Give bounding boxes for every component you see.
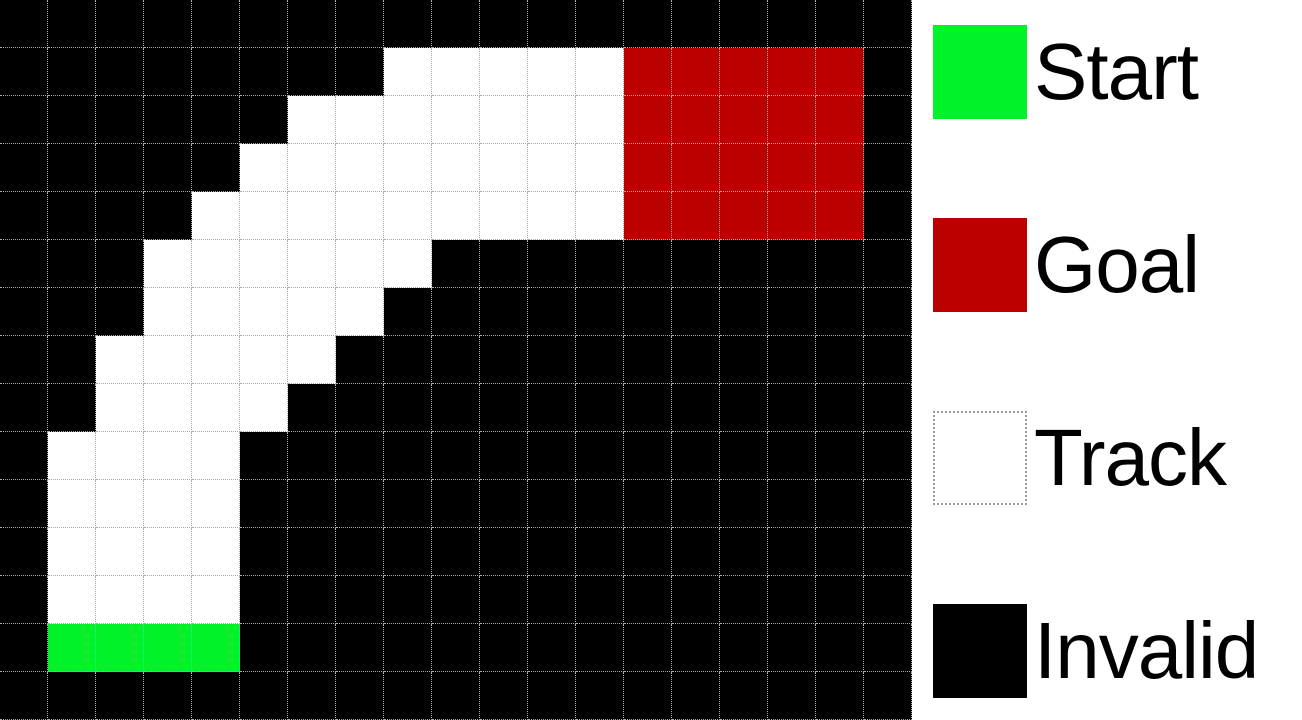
- cell-invalid: [288, 672, 336, 720]
- cell-invalid: [144, 144, 192, 192]
- cell-invalid: [480, 672, 528, 720]
- cell-track: [288, 336, 336, 384]
- cell-invalid: [480, 336, 528, 384]
- cell-invalid: [0, 624, 48, 672]
- cell-track: [96, 576, 144, 624]
- cell-goal: [672, 144, 720, 192]
- cell-invalid: [768, 0, 816, 48]
- cell-goal: [672, 48, 720, 96]
- cell-invalid: [48, 336, 96, 384]
- legend-label-start: Start: [1034, 32, 1198, 112]
- cell-invalid: [240, 432, 288, 480]
- cell-start: [144, 624, 192, 672]
- cell-invalid: [96, 144, 144, 192]
- cell-track: [96, 384, 144, 432]
- cell-invalid: [0, 528, 48, 576]
- cell-track: [240, 384, 288, 432]
- cell-goal: [624, 96, 672, 144]
- cell-track: [336, 240, 384, 288]
- cell-track: [192, 240, 240, 288]
- cell-invalid: [864, 96, 912, 144]
- cell-track: [48, 480, 96, 528]
- cell-track: [96, 528, 144, 576]
- cell-invalid: [384, 528, 432, 576]
- cell-invalid: [672, 624, 720, 672]
- cell-invalid: [144, 96, 192, 144]
- cell-invalid: [96, 96, 144, 144]
- cell-invalid: [528, 288, 576, 336]
- cell-invalid: [96, 192, 144, 240]
- cell-track: [144, 288, 192, 336]
- cell-invalid: [384, 384, 432, 432]
- cell-invalid: [144, 192, 192, 240]
- cell-invalid: [528, 384, 576, 432]
- cell-invalid: [0, 288, 48, 336]
- cell-invalid: [0, 96, 48, 144]
- cell-track: [192, 576, 240, 624]
- cell-invalid: [288, 576, 336, 624]
- cell-track: [288, 288, 336, 336]
- cell-goal: [720, 48, 768, 96]
- cell-invalid: [864, 528, 912, 576]
- cell-invalid: [480, 624, 528, 672]
- cell-track: [336, 192, 384, 240]
- cell-invalid: [480, 576, 528, 624]
- cell-track: [192, 192, 240, 240]
- cell-invalid: [0, 192, 48, 240]
- cell-invalid: [48, 144, 96, 192]
- cell-invalid: [48, 96, 96, 144]
- cell-invalid: [768, 240, 816, 288]
- cell-invalid: [768, 624, 816, 672]
- cell-track: [240, 144, 288, 192]
- cell-invalid: [336, 480, 384, 528]
- cell-invalid: [816, 528, 864, 576]
- cell-track: [144, 336, 192, 384]
- cell-invalid: [240, 48, 288, 96]
- cell-invalid: [768, 432, 816, 480]
- cell-invalid: [768, 384, 816, 432]
- cell-track: [96, 336, 144, 384]
- cell-track: [480, 192, 528, 240]
- cell-invalid: [432, 480, 480, 528]
- cell-invalid: [240, 528, 288, 576]
- cell-invalid: [192, 0, 240, 48]
- cell-invalid: [816, 288, 864, 336]
- cell-invalid: [240, 624, 288, 672]
- cell-invalid: [720, 624, 768, 672]
- legend-item-invalid: Invalid: [933, 604, 1302, 698]
- cell-invalid: [720, 528, 768, 576]
- cell-invalid: [432, 0, 480, 48]
- cell-invalid: [864, 288, 912, 336]
- cell-invalid: [192, 144, 240, 192]
- cell-invalid: [144, 0, 192, 48]
- cell-invalid: [336, 624, 384, 672]
- cell-invalid: [432, 528, 480, 576]
- cell-track: [240, 192, 288, 240]
- cell-invalid: [576, 0, 624, 48]
- cell-invalid: [720, 384, 768, 432]
- cell-start: [96, 624, 144, 672]
- cell-track: [288, 96, 336, 144]
- cell-invalid: [624, 624, 672, 672]
- cell-track: [240, 240, 288, 288]
- cell-track: [192, 480, 240, 528]
- cell-invalid: [768, 480, 816, 528]
- cell-track: [240, 336, 288, 384]
- cell-invalid: [96, 240, 144, 288]
- legend-item-track: Track: [933, 411, 1302, 505]
- cell-track: [336, 288, 384, 336]
- cell-invalid: [576, 288, 624, 336]
- cell-invalid: [384, 336, 432, 384]
- cell-invalid: [624, 240, 672, 288]
- cell-invalid: [864, 624, 912, 672]
- cell-invalid: [432, 288, 480, 336]
- cell-goal: [624, 144, 672, 192]
- cell-invalid: [768, 576, 816, 624]
- cell-invalid: [480, 384, 528, 432]
- cell-track: [528, 144, 576, 192]
- cell-invalid: [864, 192, 912, 240]
- cell-invalid: [336, 0, 384, 48]
- legend-label-invalid: Invalid: [1034, 611, 1258, 691]
- cell-invalid: [528, 0, 576, 48]
- cell-invalid: [672, 336, 720, 384]
- cell-invalid: [432, 624, 480, 672]
- cell-track: [288, 240, 336, 288]
- cell-invalid: [0, 384, 48, 432]
- cell-invalid: [0, 576, 48, 624]
- cell-track: [576, 192, 624, 240]
- cell-invalid: [528, 672, 576, 720]
- cell-invalid: [432, 672, 480, 720]
- cell-invalid: [0, 0, 48, 48]
- cell-invalid: [864, 480, 912, 528]
- cell-invalid: [864, 384, 912, 432]
- cell-goal: [624, 192, 672, 240]
- cell-track: [144, 384, 192, 432]
- cell-invalid: [288, 432, 336, 480]
- cell-invalid: [576, 480, 624, 528]
- cell-track: [432, 48, 480, 96]
- cell-invalid: [480, 0, 528, 48]
- cell-invalid: [864, 48, 912, 96]
- cell-track: [384, 240, 432, 288]
- cell-invalid: [816, 336, 864, 384]
- cell-invalid: [528, 240, 576, 288]
- cell-invalid: [864, 432, 912, 480]
- legend-item-start: Start: [933, 25, 1302, 119]
- invalid-swatch: [933, 604, 1027, 698]
- cell-invalid: [240, 96, 288, 144]
- cell-track: [48, 528, 96, 576]
- cell-invalid: [576, 576, 624, 624]
- cell-invalid: [480, 288, 528, 336]
- cell-invalid: [48, 240, 96, 288]
- legend-panel: Start Goal Track Invalid: [912, 0, 1302, 720]
- cell-invalid: [384, 288, 432, 336]
- cell-invalid: [624, 480, 672, 528]
- track-swatch: [933, 411, 1027, 505]
- cell-track: [336, 96, 384, 144]
- cell-invalid: [432, 240, 480, 288]
- cell-track: [480, 96, 528, 144]
- cell-invalid: [384, 624, 432, 672]
- cell-invalid: [720, 432, 768, 480]
- cell-invalid: [384, 480, 432, 528]
- cell-track: [528, 96, 576, 144]
- cell-invalid: [528, 624, 576, 672]
- cell-invalid: [528, 432, 576, 480]
- cell-invalid: [720, 288, 768, 336]
- cell-invalid: [672, 576, 720, 624]
- cell-invalid: [48, 192, 96, 240]
- cell-invalid: [576, 528, 624, 576]
- cell-invalid: [816, 624, 864, 672]
- goal-swatch: [933, 218, 1027, 312]
- legend-label-goal: Goal: [1034, 225, 1199, 305]
- cell-track: [432, 96, 480, 144]
- cell-track: [144, 576, 192, 624]
- racetrack-figure: Start Goal Track Invalid: [0, 0, 1302, 720]
- cell-invalid: [192, 672, 240, 720]
- cell-track: [576, 144, 624, 192]
- cell-invalid: [720, 336, 768, 384]
- cell-invalid: [48, 288, 96, 336]
- cell-invalid: [480, 480, 528, 528]
- cell-invalid: [768, 528, 816, 576]
- cell-invalid: [48, 384, 96, 432]
- cell-invalid: [624, 0, 672, 48]
- cell-track: [432, 192, 480, 240]
- cell-invalid: [288, 624, 336, 672]
- cell-invalid: [864, 576, 912, 624]
- legend-label-track: Track: [1034, 418, 1226, 498]
- cell-goal: [768, 96, 816, 144]
- cell-goal: [816, 48, 864, 96]
- cell-goal: [768, 192, 816, 240]
- cell-track: [192, 336, 240, 384]
- cell-track: [192, 288, 240, 336]
- cell-invalid: [0, 336, 48, 384]
- cell-invalid: [0, 48, 48, 96]
- cell-track: [240, 288, 288, 336]
- cell-invalid: [384, 576, 432, 624]
- legend-item-goal: Goal: [933, 218, 1302, 312]
- cell-invalid: [144, 48, 192, 96]
- cell-invalid: [336, 48, 384, 96]
- cell-invalid: [528, 480, 576, 528]
- cell-invalid: [816, 0, 864, 48]
- cell-track: [288, 192, 336, 240]
- cell-invalid: [576, 336, 624, 384]
- cell-invalid: [528, 576, 576, 624]
- cell-track: [480, 144, 528, 192]
- cell-goal: [816, 192, 864, 240]
- cell-invalid: [336, 336, 384, 384]
- cell-invalid: [0, 672, 48, 720]
- cell-invalid: [192, 96, 240, 144]
- cell-track: [144, 480, 192, 528]
- cell-goal: [720, 96, 768, 144]
- cell-track: [528, 48, 576, 96]
- cell-track: [144, 528, 192, 576]
- cell-track: [384, 192, 432, 240]
- cell-goal: [816, 144, 864, 192]
- cell-invalid: [288, 528, 336, 576]
- cell-invalid: [240, 576, 288, 624]
- cell-invalid: [0, 480, 48, 528]
- cell-invalid: [336, 384, 384, 432]
- cell-invalid: [768, 288, 816, 336]
- cell-invalid: [624, 528, 672, 576]
- cell-invalid: [336, 528, 384, 576]
- cell-goal: [816, 96, 864, 144]
- cell-invalid: [672, 384, 720, 432]
- cell-track: [48, 576, 96, 624]
- cell-track: [48, 432, 96, 480]
- cell-invalid: [720, 672, 768, 720]
- cell-invalid: [480, 240, 528, 288]
- cell-invalid: [624, 288, 672, 336]
- cell-invalid: [48, 0, 96, 48]
- cell-invalid: [864, 240, 912, 288]
- cell-invalid: [816, 240, 864, 288]
- cell-invalid: [288, 480, 336, 528]
- cell-invalid: [672, 288, 720, 336]
- cell-invalid: [864, 672, 912, 720]
- cell-invalid: [384, 432, 432, 480]
- cell-track: [528, 192, 576, 240]
- cell-invalid: [864, 0, 912, 48]
- cell-goal: [768, 48, 816, 96]
- cell-invalid: [672, 0, 720, 48]
- cell-invalid: [96, 0, 144, 48]
- cell-invalid: [576, 624, 624, 672]
- cell-invalid: [576, 432, 624, 480]
- cell-track: [336, 144, 384, 192]
- cell-track: [144, 240, 192, 288]
- cell-invalid: [288, 384, 336, 432]
- cell-track: [384, 96, 432, 144]
- cell-track: [288, 144, 336, 192]
- cell-invalid: [816, 432, 864, 480]
- cell-invalid: [720, 240, 768, 288]
- cell-goal: [672, 96, 720, 144]
- cell-invalid: [816, 576, 864, 624]
- cell-track: [144, 432, 192, 480]
- cell-invalid: [192, 48, 240, 96]
- cell-invalid: [144, 672, 192, 720]
- cell-invalid: [720, 480, 768, 528]
- cell-goal: [768, 144, 816, 192]
- cell-track: [432, 144, 480, 192]
- cell-invalid: [672, 480, 720, 528]
- cell-goal: [672, 192, 720, 240]
- cell-invalid: [384, 672, 432, 720]
- cell-invalid: [864, 336, 912, 384]
- cell-invalid: [0, 432, 48, 480]
- cell-invalid: [432, 384, 480, 432]
- cell-invalid: [672, 672, 720, 720]
- cell-invalid: [0, 240, 48, 288]
- cell-track: [192, 432, 240, 480]
- cell-invalid: [672, 528, 720, 576]
- cell-invalid: [624, 384, 672, 432]
- cell-goal: [720, 144, 768, 192]
- cell-track: [384, 144, 432, 192]
- cell-track: [480, 48, 528, 96]
- cell-invalid: [48, 672, 96, 720]
- cell-invalid: [336, 672, 384, 720]
- cell-invalid: [816, 384, 864, 432]
- cell-invalid: [528, 336, 576, 384]
- cell-invalid: [624, 672, 672, 720]
- cell-track: [192, 384, 240, 432]
- cell-invalid: [768, 672, 816, 720]
- cell-invalid: [816, 672, 864, 720]
- cell-invalid: [48, 48, 96, 96]
- racetrack-grid: [0, 0, 912, 720]
- cell-start: [48, 624, 96, 672]
- cell-invalid: [576, 240, 624, 288]
- cell-invalid: [288, 48, 336, 96]
- cell-invalid: [624, 432, 672, 480]
- cell-invalid: [720, 576, 768, 624]
- cell-invalid: [720, 0, 768, 48]
- cell-invalid: [432, 336, 480, 384]
- cell-invalid: [576, 672, 624, 720]
- cell-invalid: [240, 672, 288, 720]
- cell-track: [576, 48, 624, 96]
- cell-goal: [720, 192, 768, 240]
- cell-track: [96, 432, 144, 480]
- start-swatch: [933, 25, 1027, 119]
- cell-invalid: [336, 576, 384, 624]
- cell-invalid: [240, 480, 288, 528]
- cell-invalid: [624, 336, 672, 384]
- cell-invalid: [96, 48, 144, 96]
- cell-invalid: [672, 240, 720, 288]
- cell-invalid: [384, 0, 432, 48]
- cell-track: [192, 528, 240, 576]
- cell-invalid: [672, 432, 720, 480]
- cell-track: [384, 48, 432, 96]
- cell-track: [96, 480, 144, 528]
- cell-invalid: [528, 528, 576, 576]
- cell-invalid: [816, 480, 864, 528]
- cell-invalid: [768, 336, 816, 384]
- cell-goal: [624, 48, 672, 96]
- cell-invalid: [432, 432, 480, 480]
- cell-invalid: [864, 144, 912, 192]
- cell-invalid: [0, 144, 48, 192]
- cell-invalid: [432, 576, 480, 624]
- cell-start: [192, 624, 240, 672]
- cell-track: [576, 96, 624, 144]
- cell-invalid: [288, 0, 336, 48]
- cell-invalid: [480, 432, 528, 480]
- cell-invalid: [576, 384, 624, 432]
- cell-invalid: [240, 0, 288, 48]
- cell-invalid: [480, 528, 528, 576]
- cell-invalid: [624, 576, 672, 624]
- cell-invalid: [336, 432, 384, 480]
- cell-invalid: [96, 672, 144, 720]
- cell-invalid: [96, 288, 144, 336]
